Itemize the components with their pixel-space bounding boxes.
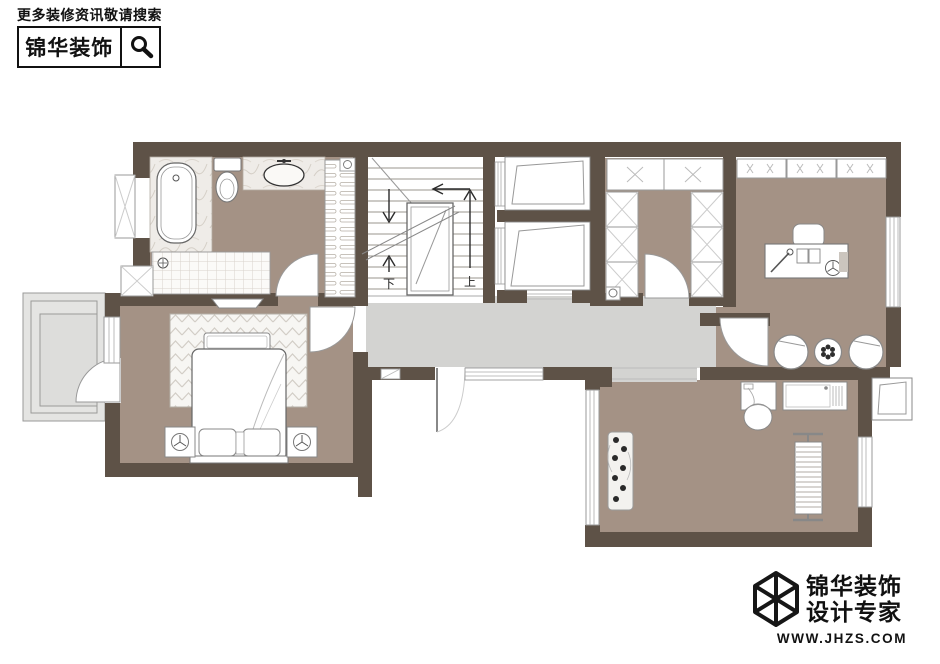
floorplan-page: 上 下 (0, 0, 940, 664)
vanity-sink (243, 157, 325, 190)
footer-brand-block: 锦华装饰 设计专家 WWW.JHZS.COM (752, 570, 932, 646)
nightstand-right (287, 427, 317, 457)
shaft-upper (505, 157, 590, 210)
lounge-corner (774, 335, 883, 369)
brand-name: 锦华装饰 (19, 28, 120, 66)
round-chair-left (774, 335, 808, 369)
gym-window-right (858, 437, 872, 507)
wall-top (133, 142, 901, 157)
desk (765, 244, 848, 278)
corridor-window (465, 368, 543, 380)
brand-logo-box: 锦华装饰 (17, 26, 161, 68)
light-shafts (495, 157, 590, 299)
study-window (886, 217, 900, 307)
search-icon (122, 28, 159, 66)
pillow-left (199, 429, 236, 456)
pillow-right (243, 429, 280, 456)
round-chair-right (849, 335, 883, 369)
shower-area (152, 252, 270, 294)
nightstand-left (165, 427, 195, 457)
wardrobe-right-column (691, 192, 723, 297)
wardrobe-left-column (606, 192, 638, 297)
corridor-floor (366, 296, 716, 368)
side-table (815, 339, 842, 366)
treadmill (793, 434, 823, 520)
tv-unit (212, 299, 263, 308)
bathroom-window (115, 175, 135, 238)
stair-up-label: 上 (464, 275, 476, 289)
footer-brand-name: 锦华装饰 (806, 573, 902, 599)
flower-bench (608, 432, 633, 510)
wall-gym-bottom (585, 532, 872, 547)
footer-subtitle: 设计专家 (806, 599, 902, 625)
headboard (190, 456, 288, 463)
linen-wardrobe (325, 158, 355, 297)
wall-bottom-left (105, 463, 368, 477)
shaft-lower (505, 222, 590, 290)
gym-desk (741, 382, 776, 430)
header-tagline: 更多装修资讯敬请搜索 (17, 5, 162, 25)
bedroom-window (104, 317, 120, 363)
wardrobe-top-row (607, 159, 723, 190)
bed (190, 349, 288, 463)
stair-down-label: 下 (383, 277, 395, 291)
gym-window-left (586, 390, 599, 525)
staircase: 上 下 (362, 157, 483, 303)
study-top-cabinets (737, 159, 886, 178)
footer-website: WWW.JHZS.COM (752, 631, 932, 646)
cube-logo-icon (752, 570, 800, 628)
shaft-southeast (872, 378, 912, 420)
hall-door-opening (435, 367, 465, 380)
sideboard (783, 382, 847, 410)
duct-box (121, 266, 153, 296)
floor-plan: 上 下 (0, 0, 940, 664)
